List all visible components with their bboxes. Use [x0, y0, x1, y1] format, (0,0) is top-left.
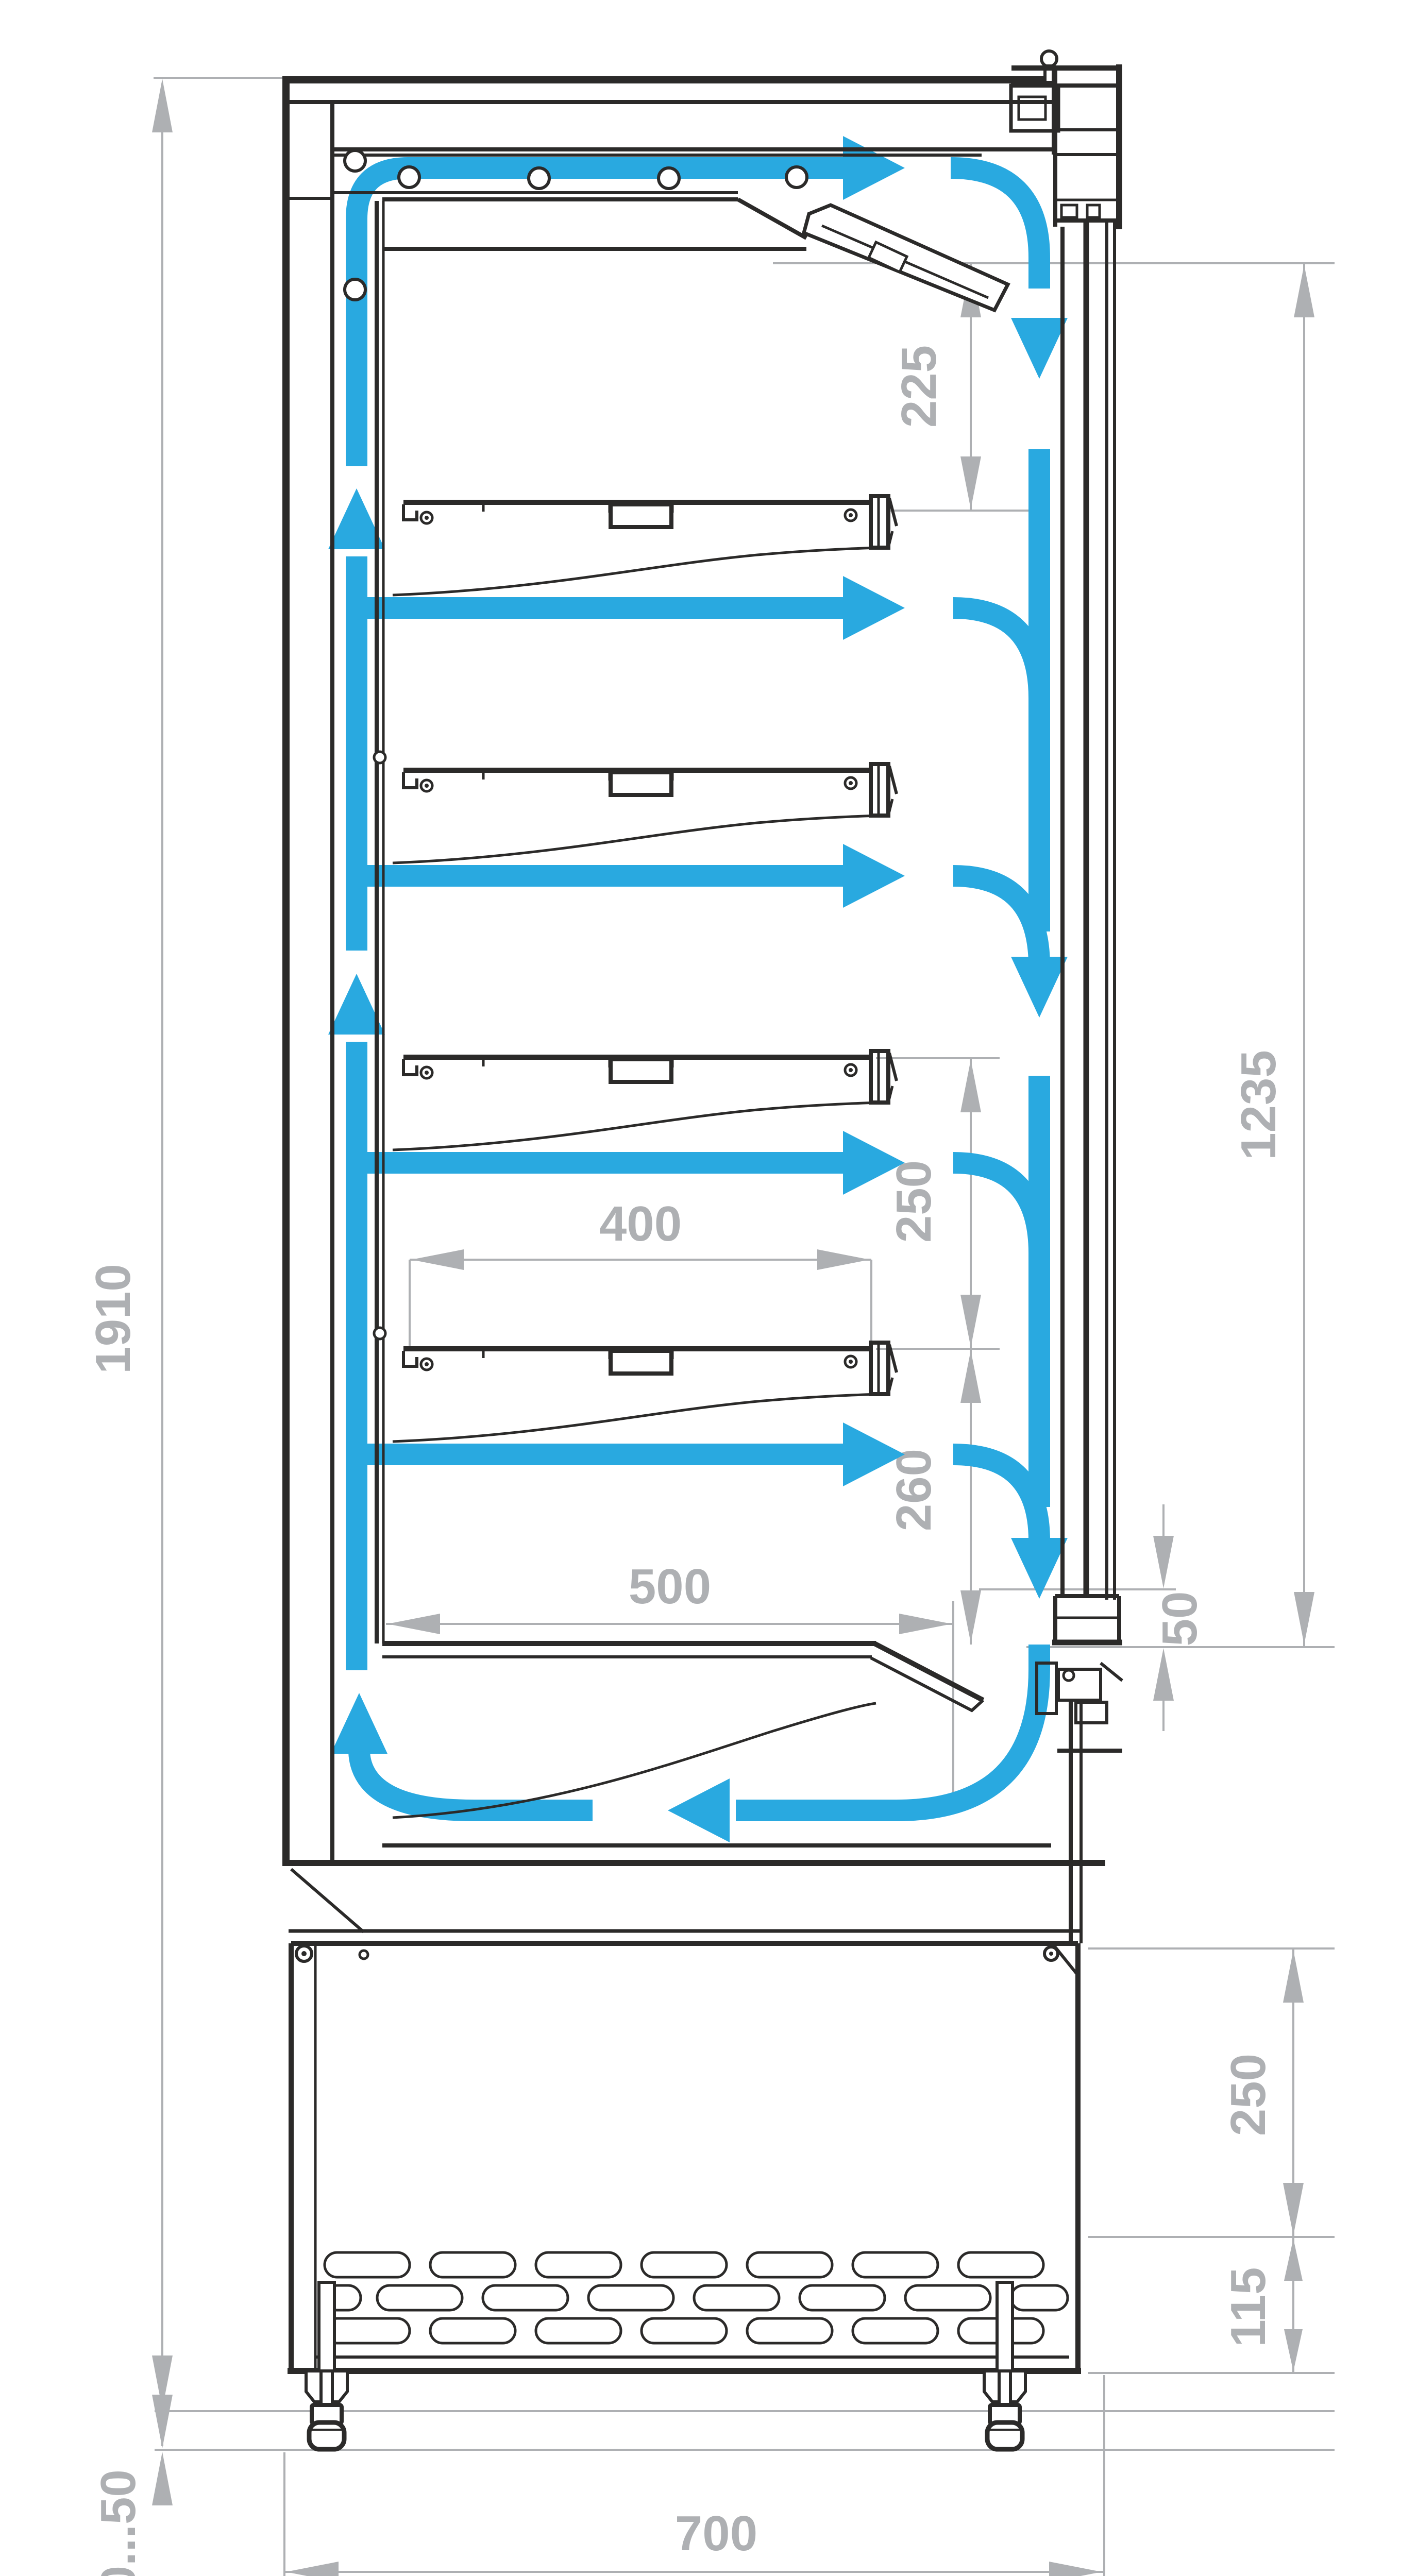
shelf-4: [393, 1343, 897, 1442]
door-top-screw: [1041, 51, 1057, 66]
dim-plinth: 115: [1088, 2237, 1335, 2373]
shelf-3: [393, 1051, 897, 1150]
dimension-annotations: 1910 30...50 225 250: [86, 78, 1335, 2576]
airflow-merge-curve: [953, 1163, 1039, 1253]
airflow-bottom-return: [359, 1752, 593, 1810]
dim-machine-compartment: 250: [1088, 1948, 1335, 2237]
dim-top-gap: 225: [773, 263, 1335, 511]
airflow-merge-curve: [953, 608, 1039, 698]
airflow-top-discharge: [357, 168, 845, 466]
adjustable-foot-right: [984, 2282, 1025, 2449]
shelf-1: [393, 496, 897, 595]
dim-label-shelf-pitch: 250: [886, 1160, 941, 1243]
dim-label-top-gap: 225: [891, 345, 947, 428]
dim-overall-depth: 700: [284, 2375, 1104, 2576]
shelf-2: [393, 764, 897, 863]
dim-shelf-pitch: 250: [876, 1058, 1000, 1349]
ventilation-grille: [325, 2252, 1068, 2343]
base-unit: [288, 1869, 1081, 2449]
air-deflector-vane: [804, 205, 1008, 310]
dim-label-foot-adjustment: 30...50: [91, 2469, 146, 2576]
airflow-arrowhead: [1011, 318, 1068, 379]
cabinet-structure: [282, 51, 1122, 2449]
dim-bottom-shelf-depth: 500: [386, 1559, 953, 1793]
airflow-merge-curve: [953, 876, 1039, 966]
dim-label-bottom-shelf-depth: 500: [629, 1559, 711, 1614]
adjustable-foot-left: [306, 2282, 347, 2449]
airflow-arrowhead: [331, 1693, 387, 1754]
dim-label-overall-depth: 700: [675, 2506, 757, 2561]
dim-label-plinth: 115: [1221, 2267, 1276, 2347]
airflow-merge-curve: [953, 1454, 1039, 1540]
airflow-arrowhead: [843, 844, 905, 908]
dim-bottom-shelf-gap: 260: [886, 1349, 981, 1645]
airflow-arrowhead: [843, 136, 905, 200]
dim-front-opening: 1235: [1026, 263, 1335, 1647]
airflow-arrowhead: [843, 576, 905, 640]
dim-label-overall-height: 1910: [86, 1264, 141, 1374]
dim-label-front-opening: 1235: [1231, 1050, 1286, 1160]
dim-shelf-depth: 400: [410, 1196, 871, 1346]
dim-label-shelf-depth: 400: [599, 1196, 682, 1251]
dim-label-bottom-shelf-gap: 260: [886, 1449, 941, 1531]
cabinet-cross-section-drawing: 1910 30...50 225 250: [0, 0, 1417, 2576]
dim-label-machine-compartment: 250: [1221, 2054, 1276, 2136]
dim-overall-height: 1910: [86, 78, 284, 2448]
airflow-arrowhead: [668, 1778, 730, 1842]
airflow-arrowhead: [1011, 957, 1068, 1018]
dim-label-door-bottom-gap: 50: [1152, 1591, 1207, 1647]
